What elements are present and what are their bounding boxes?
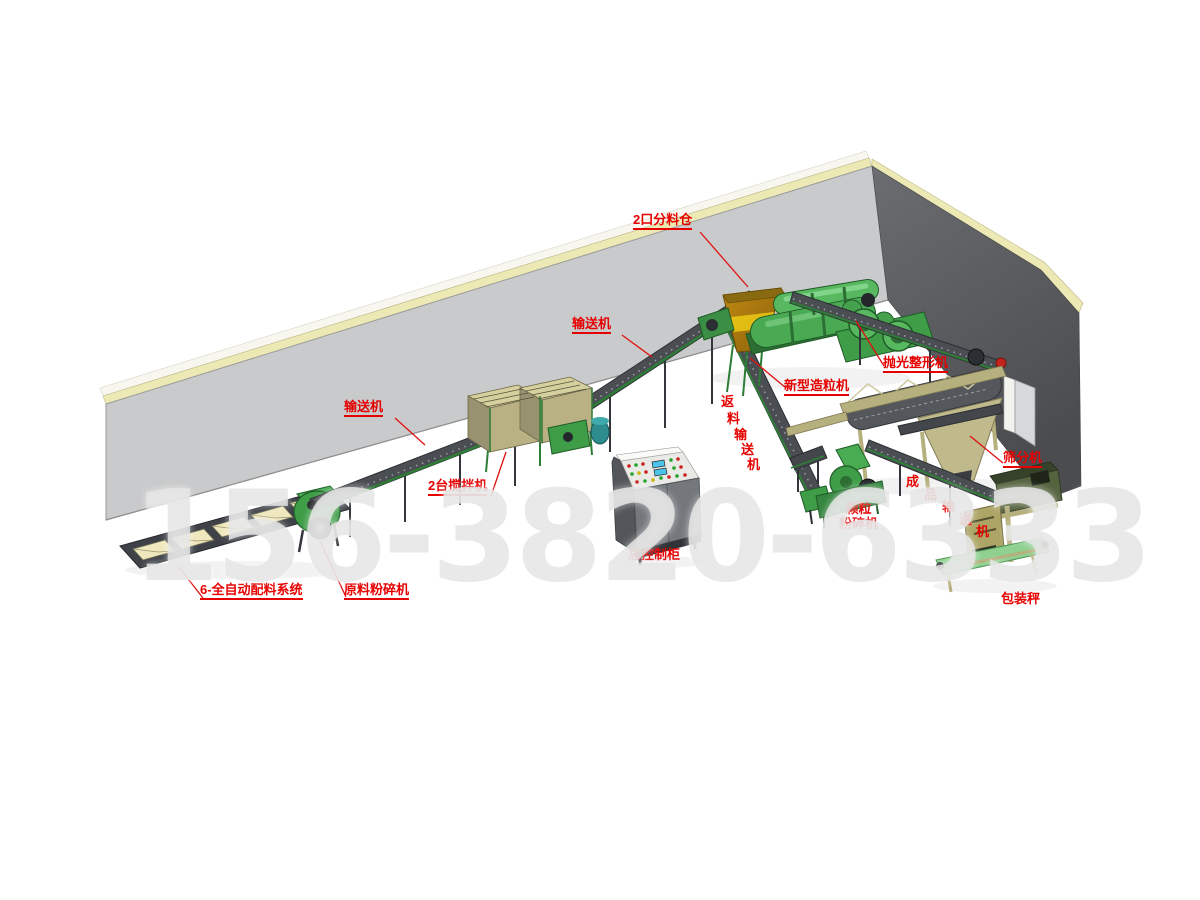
label-layer: 2口分料仓 输送机 输送机 2台搅拌机 新型造粒机 抛光整形机 筛分机 总控制柜… bbox=[0, 0, 1200, 900]
label-polisher: 抛光整形机 bbox=[883, 356, 948, 373]
label-granulator: 新型造粒机 bbox=[784, 379, 849, 396]
production-line-diagram: 2口分料仓 输送机 输送机 2台搅拌机 新型造粒机 抛光整形机 筛分机 总控制柜… bbox=[0, 0, 1200, 900]
label-conveyor-lower: 输送机 bbox=[344, 400, 383, 417]
label-distribution-bin: 2口分料仓 bbox=[633, 213, 692, 230]
label-conveyor-upper: 输送机 bbox=[572, 317, 611, 334]
phone-watermark: 156-3820-6333 bbox=[132, 474, 1149, 600]
